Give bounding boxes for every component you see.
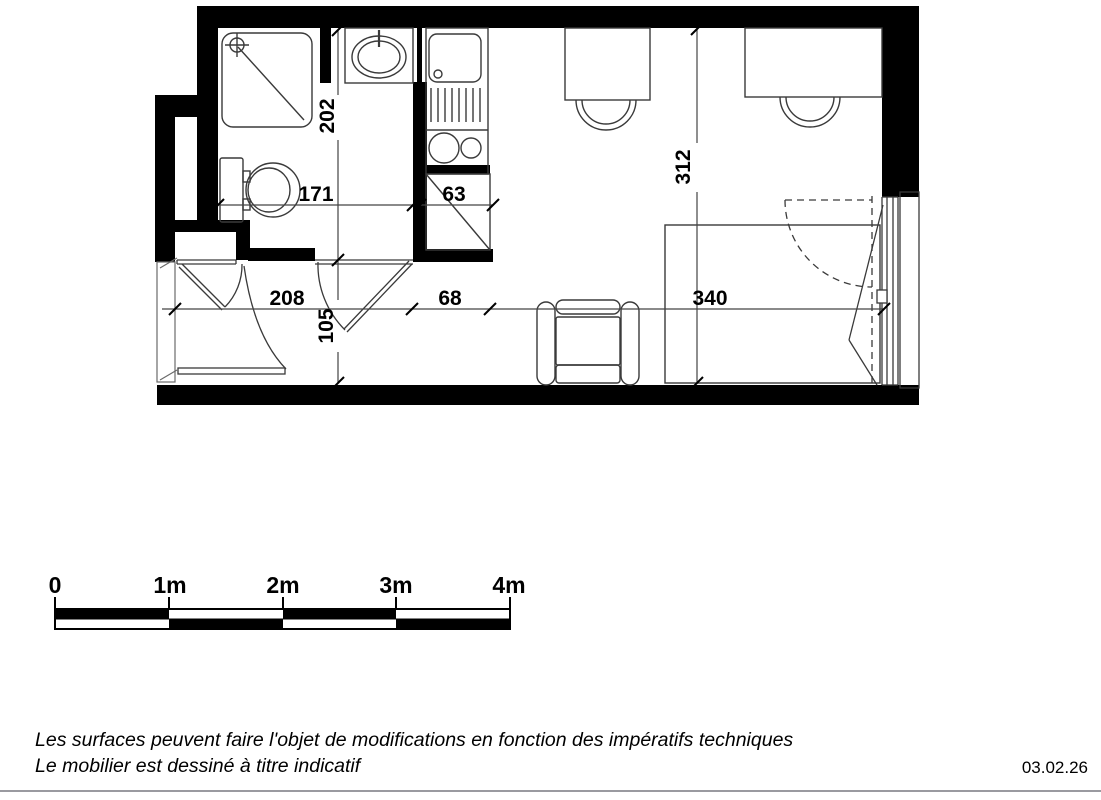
dim-label-63: 63 [442,183,465,206]
page-bottom-rule [0,790,1101,792]
shower [222,33,312,127]
scale-label-0: 0 [49,572,62,598]
wall-right-upper [882,6,919,197]
washbasin [345,28,413,83]
kitchen-sink [429,34,481,82]
wall-top [197,6,919,28]
desk-2 [745,28,882,97]
dim-label-68: 68 [438,287,462,310]
scale-label-1m: 1m [153,572,186,598]
drainboard [431,88,480,122]
door-leaf [182,264,225,307]
entrance-door [177,260,286,369]
sink-drain-icon [434,70,442,78]
wall-entry-stub [236,232,250,260]
burner-small-icon [461,138,481,158]
dim-label-340: 340 [692,287,727,310]
window-sill [900,192,919,388]
floor-plan-page: 202 171 63 312 208 105 68 340 0 1m 2m 3m… [0,0,1101,800]
chair-2 [780,97,840,127]
door-leaf [344,261,409,329]
armchair [537,300,639,385]
wall-bath-kitchen-stub [320,28,331,83]
scale-label-4m: 4m [492,572,525,598]
door-swing-arc [225,264,242,307]
dim-label-105: 105 [315,308,338,343]
scale-label-3m: 3m [379,572,412,598]
wall-closet-left [420,174,426,258]
wall-kitchen-bottom [420,165,490,174]
footer-date: 03.02.26 [1022,758,1088,778]
scale-bar: 0 1m 2m 3m 4m [49,572,526,629]
dim-label-208: 208 [269,287,304,310]
footer-disclaimer-line1: Les surfaces peuvent faire l'objet de mo… [35,729,793,752]
toilet [220,158,300,222]
wall-bath-south [248,248,315,261]
window-handle-icon [877,290,887,303]
window [785,192,919,388]
dimension-ticks [169,23,890,389]
burner-large-icon [429,133,459,163]
wall-bottom [157,385,919,405]
wall-left-outer [155,95,175,262]
floor-plan-drawing: 202 171 63 312 208 105 68 340 0 1m 2m 3m… [0,0,1101,800]
scale-label-2m: 2m [266,572,299,598]
footer-disclaimer-line2: Le mobilier est dessiné à titre indicati… [35,755,360,778]
wall-bath-east-thin [417,28,422,82]
kitchen-unit [426,28,488,174]
chair-1 [576,100,636,130]
party-wall-band [157,258,177,382]
dim-label-171: 171 [298,183,333,206]
dim-label-312: 312 [672,149,695,184]
entry-wardrobe [178,368,285,374]
dim-label-202: 202 [316,98,339,133]
desk-1 [565,28,650,100]
wall-left-cap [155,95,218,117]
door-swing-arc-large [244,266,286,369]
